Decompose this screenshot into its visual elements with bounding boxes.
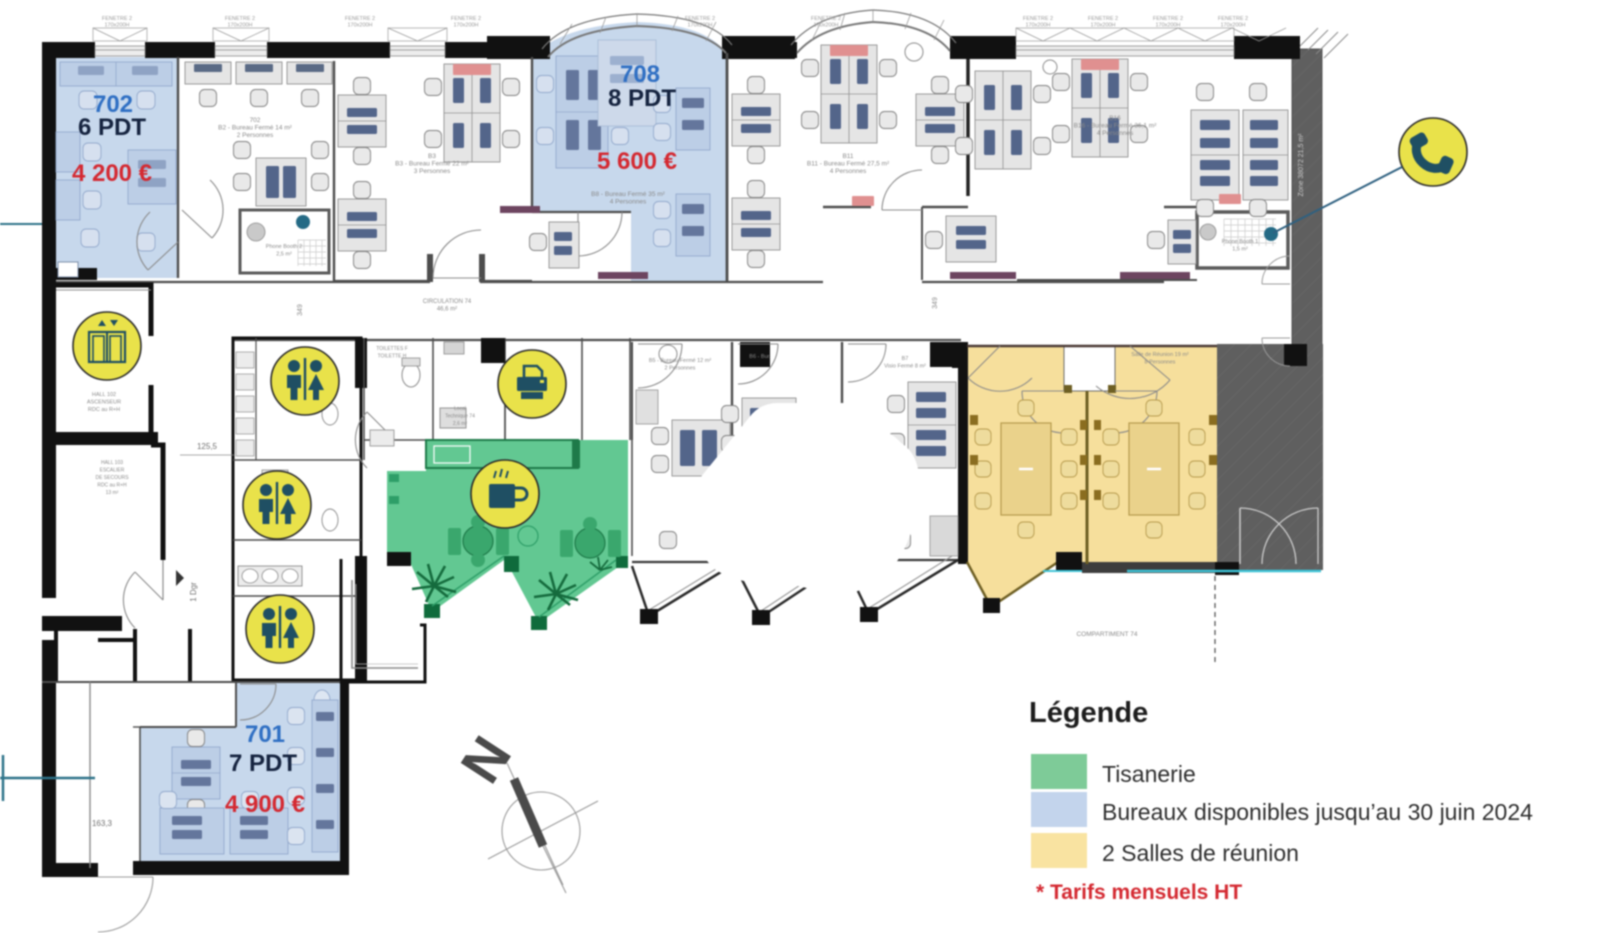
svg-text:Tisanerie: Tisanerie [1102,761,1196,787]
svg-text:Phone Booth 2: Phone Booth 2 [266,244,302,250]
svg-text:170x200H: 170x200H [1220,23,1245,29]
svg-text:RDC au R+H: RDC au R+H [97,483,127,489]
svg-text:708: 708 [620,61,660,88]
svg-text:COMPARTIMENT 74: COMPARTIMENT 74 [1076,631,1137,638]
svg-text:125,5: 125,5 [197,442,218,451]
svg-text:ESCALIER: ESCALIER [100,468,125,474]
svg-text:ASCENSEUR: ASCENSEUR [87,400,121,406]
svg-text:170x200H: 170x200H [813,23,838,29]
svg-text:FENETRE 2: FENETRE 2 [1153,16,1183,22]
svg-text:8 PDT: 8 PDT [608,85,676,112]
svg-text:170x200H: 170x200H [1090,23,1115,29]
svg-text:702: 702 [250,117,261,124]
svg-text:Légende: Légende [1029,697,1148,729]
svg-text:FENETRE 2: FENETRE 2 [451,16,481,22]
svg-text:4 Personnes: 4 Personnes [830,168,867,175]
svg-text:2 Personnes: 2 Personnes [665,366,696,372]
svg-text:FENETRE 2: FENETRE 2 [1088,16,1118,22]
svg-text:2,5 m²: 2,5 m² [276,252,292,258]
svg-text:170x200H: 170x200H [453,23,478,29]
svg-text:Salle de Réunion 19 m²: Salle de Réunion 19 m² [1131,352,1189,358]
svg-text:46,6 m²: 46,6 m² [437,307,457,313]
svg-text:170x200H: 170x200H [104,23,129,29]
svg-text:4 200 €: 4 200 € [72,160,152,187]
svg-text:FENETRE 2: FENETRE 2 [1023,16,1053,22]
svg-text:Local: Local [454,406,466,412]
svg-text:170x200H: 170x200H [227,23,252,29]
svg-text:Bureaux disponibles jusqu’au 3: Bureaux disponibles jusqu’au 30 juin 202… [1102,799,1533,825]
svg-text:Technique 74: Technique 74 [445,414,475,420]
svg-text:HALL 103: HALL 103 [101,460,123,466]
svg-text:B8 - Bureau Fermé 35 m²: B8 - Bureau Fermé 35 m² [591,191,666,198]
svg-text:FENETRE 2: FENETRE 2 [345,16,375,22]
svg-text:B3: B3 [428,153,436,160]
svg-text:Zone 38072 21,5 m²: Zone 38072 21,5 m² [1298,133,1305,197]
svg-text:701: 701 [245,721,285,748]
svg-text:4 Personnes: 4 Personnes [1097,130,1134,137]
svg-text:HALL 102: HALL 102 [92,392,116,398]
svg-text:B7: B7 [902,356,909,362]
svg-text:2 Personnes: 2 Personnes [237,132,274,139]
svg-text:170x200H: 170x200H [1025,23,1050,29]
svg-text:B3 - Bureau Fermé 22 m²: B3 - Bureau Fermé 22 m² [395,161,470,168]
svg-text:7 PDT: 7 PDT [229,750,297,777]
svg-text:4 900 €: 4 900 € [225,791,305,818]
svg-text:RDC au R+H: RDC au R+H [88,407,120,413]
svg-text:B16: B16 [1109,115,1121,122]
svg-text:13 m²: 13 m² [106,490,119,496]
svg-text:3 Personnes: 3 Personnes [414,168,451,175]
svg-text:5 600 €: 5 600 € [597,148,677,175]
svg-text:CIRCULATION 74: CIRCULATION 74 [423,299,472,305]
svg-text:349: 349 [297,304,304,316]
svg-text:Phone Booth 1: Phone Booth 1 [1222,239,1258,245]
svg-text:349: 349 [932,297,939,309]
svg-text:170x200H: 170x200H [1155,23,1180,29]
svg-text:B2 - Bureau Fermé 14 m²: B2 - Bureau Fermé 14 m² [218,125,293,132]
svg-text:4 Personnes: 4 Personnes [610,199,647,206]
svg-text:FENETRE 2: FENETRE 2 [225,16,255,22]
svg-text:2 Salles de réunion: 2 Salles de réunion [1102,840,1299,866]
svg-text:B11: B11 [842,153,853,160]
svg-text:* Tarifs mensuels HT: * Tarifs mensuels HT [1036,881,1242,904]
svg-text:FENETRE 2: FENETRE 2 [685,16,715,22]
svg-text:B5 - Bureau Fermé 12 m²: B5 - Bureau Fermé 12 m² [649,358,712,364]
svg-text:B16 - Bureau Fermé 36,1 m²: B16 - Bureau Fermé 36,1 m² [1074,123,1158,130]
svg-text:FENETRE 2: FENETRE 2 [811,16,841,22]
svg-text:170x200H: 170x200H [347,23,372,29]
svg-text:2,6 m²: 2,6 m² [453,421,468,427]
svg-text:1 Dgr: 1 Dgr [189,582,198,602]
svg-text:FENETRE 2: FENETRE 2 [1218,16,1248,22]
svg-text:B11 - Bureau Fermé 27,5 m²: B11 - Bureau Fermé 27,5 m² [807,161,890,168]
svg-text:8 Personnes: 8 Personnes [1145,360,1176,366]
svg-text:1,5 m²: 1,5 m² [1232,247,1248,253]
svg-text:TOILETTES F: TOILETTES F [376,346,408,352]
svg-text:163,3: 163,3 [92,819,113,828]
svg-text:B6 - Bur.: B6 - Bur. [749,354,771,360]
svg-text:Visio Fermé 8 m²: Visio Fermé 8 m² [884,364,926,370]
svg-text:FENETRE 2: FENETRE 2 [102,16,132,22]
svg-text:DE SECOURS: DE SECOURS [95,475,129,481]
svg-text:6 PDT: 6 PDT [78,114,146,141]
svg-text:TOILETTE H: TOILETTE H [378,354,407,360]
svg-text:170x200H: 170x200H [687,23,712,29]
